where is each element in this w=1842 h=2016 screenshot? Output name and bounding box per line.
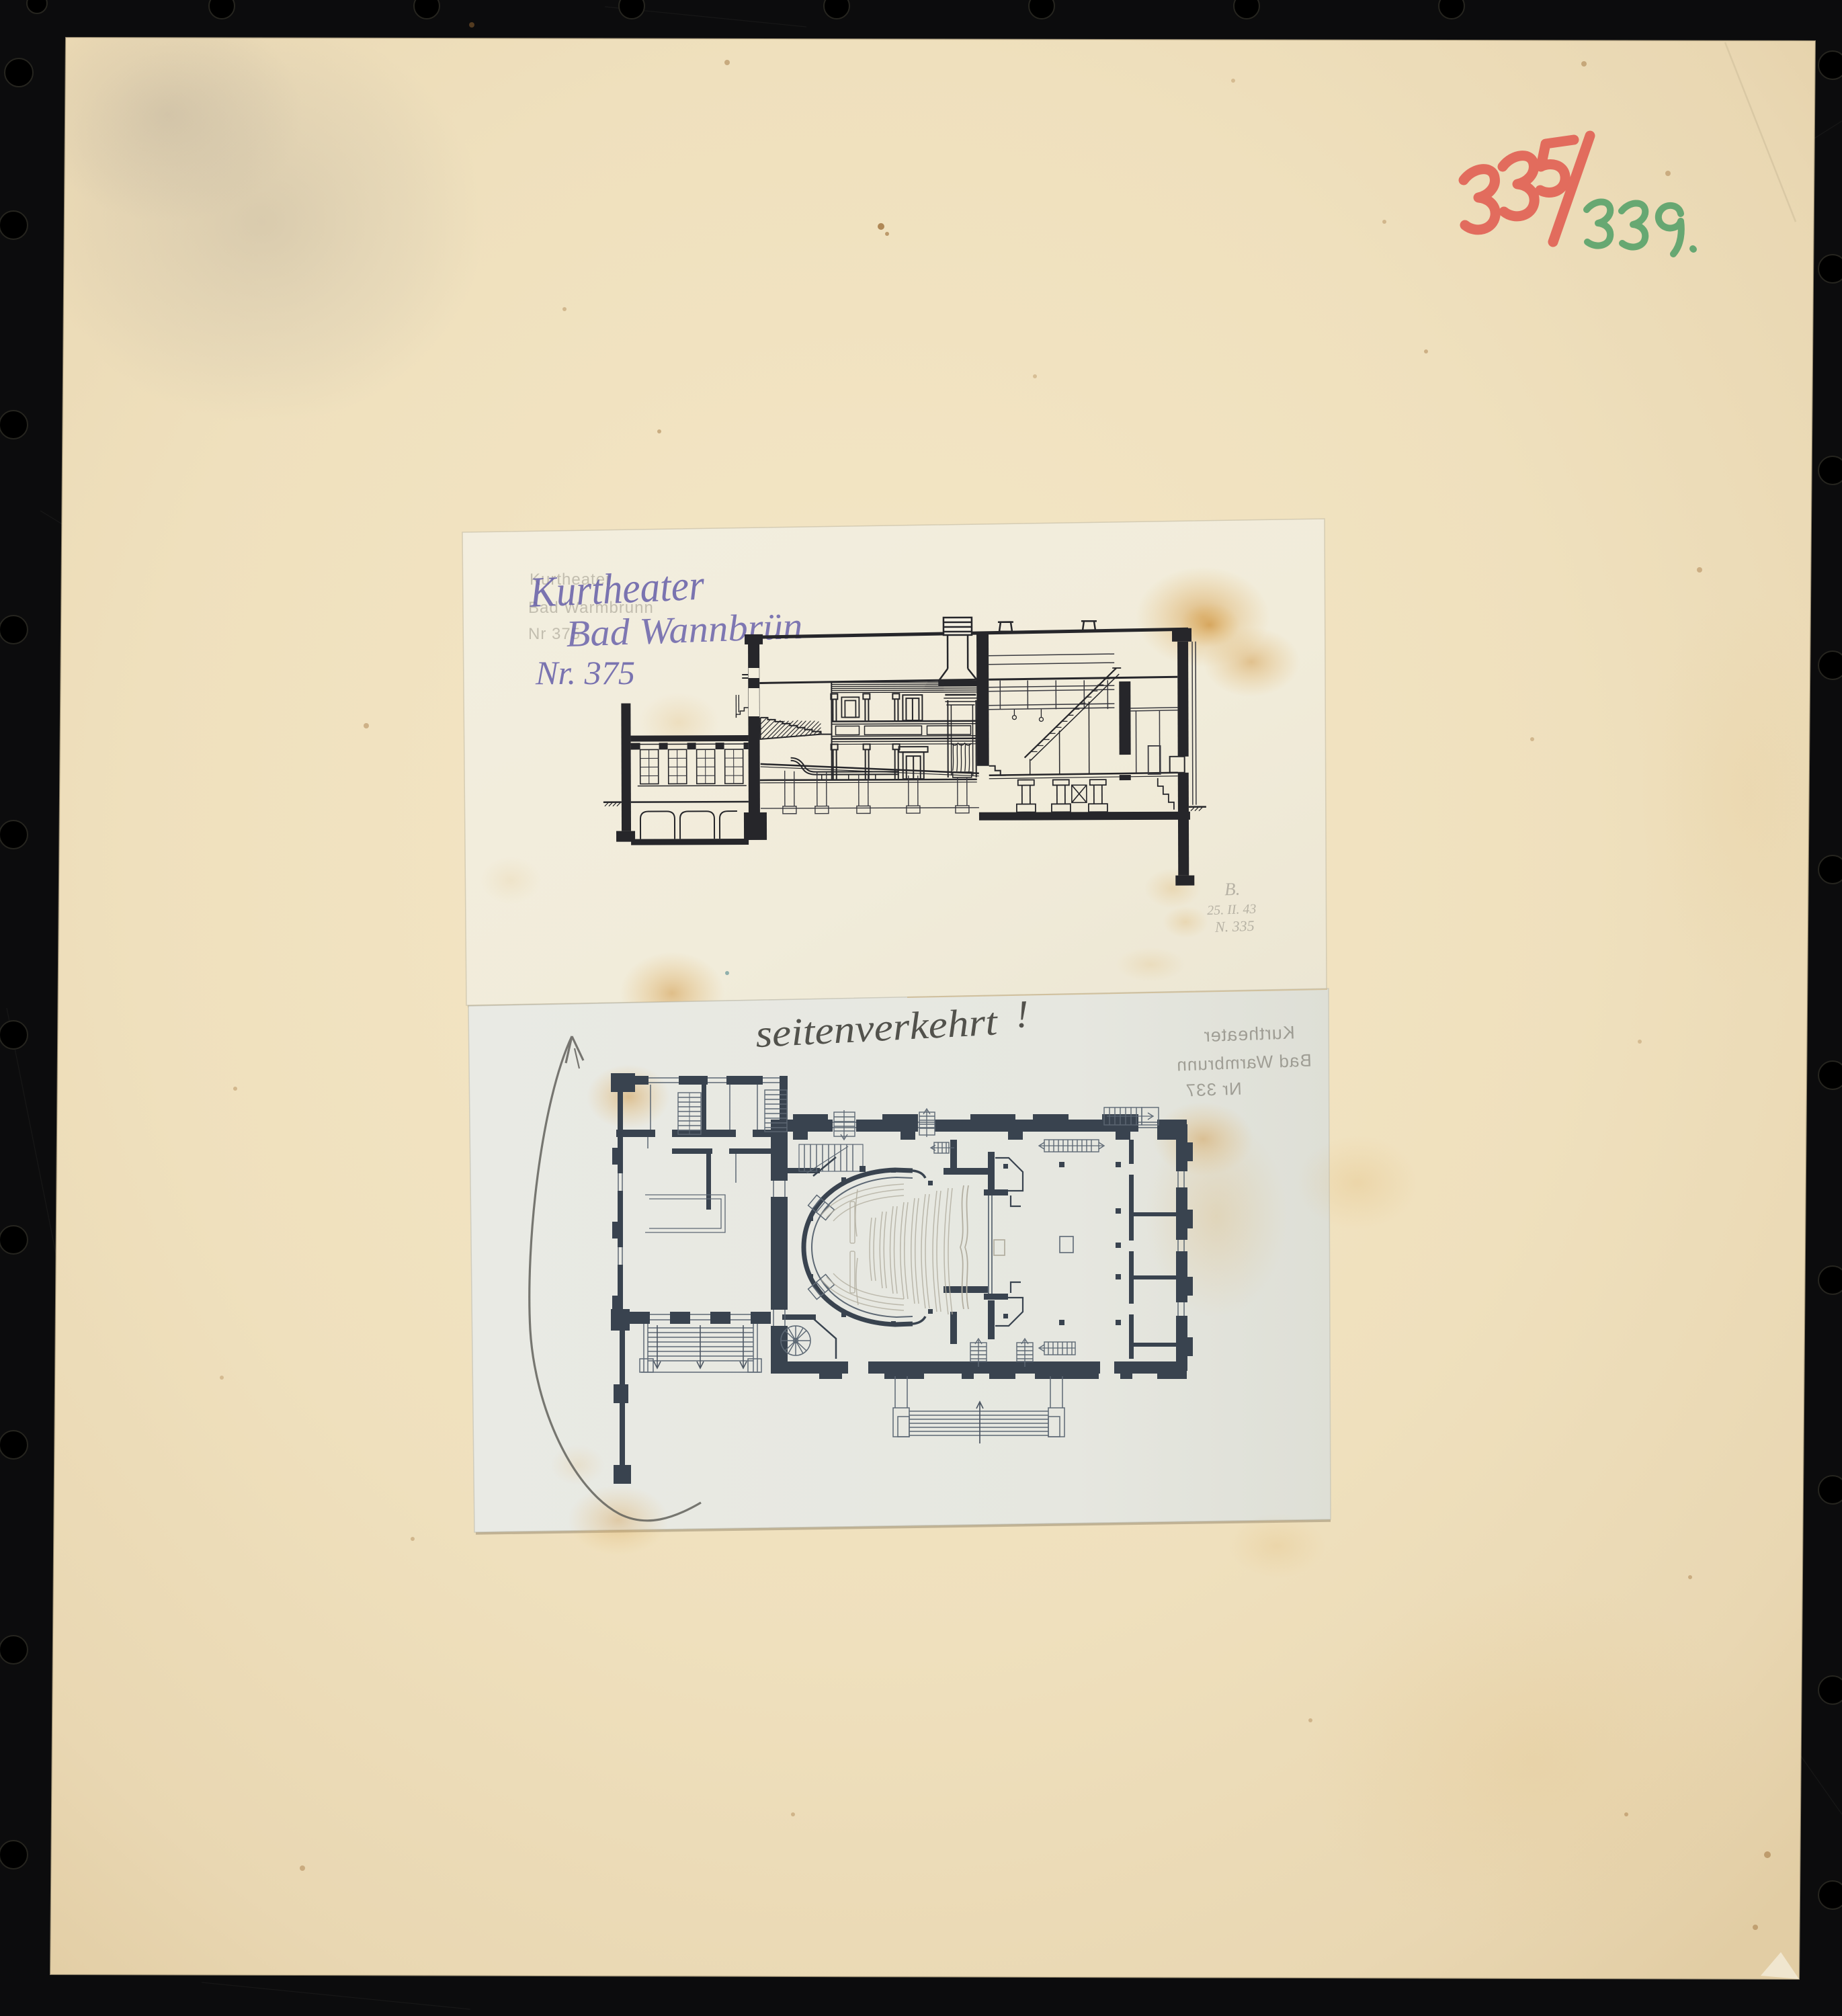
svg-text:!: ! (1015, 992, 1030, 1036)
svg-text:Bad Wannbrün: Bad Wannbrün (565, 605, 803, 655)
svg-text:Nr. 375: Nr. 375 (535, 654, 635, 691)
svg-text:Nr 337: Nr 337 (1185, 1079, 1242, 1101)
svg-text:Kurtheater: Kurtheater (1203, 1022, 1295, 1046)
svg-text:25. II. 43: 25. II. 43 (1207, 902, 1257, 919)
svg-text:N. 335: N. 335 (1214, 917, 1255, 935)
svg-text:Kurtheater: Kurtheater (528, 561, 706, 616)
svg-text:B.: B. (1224, 878, 1241, 899)
